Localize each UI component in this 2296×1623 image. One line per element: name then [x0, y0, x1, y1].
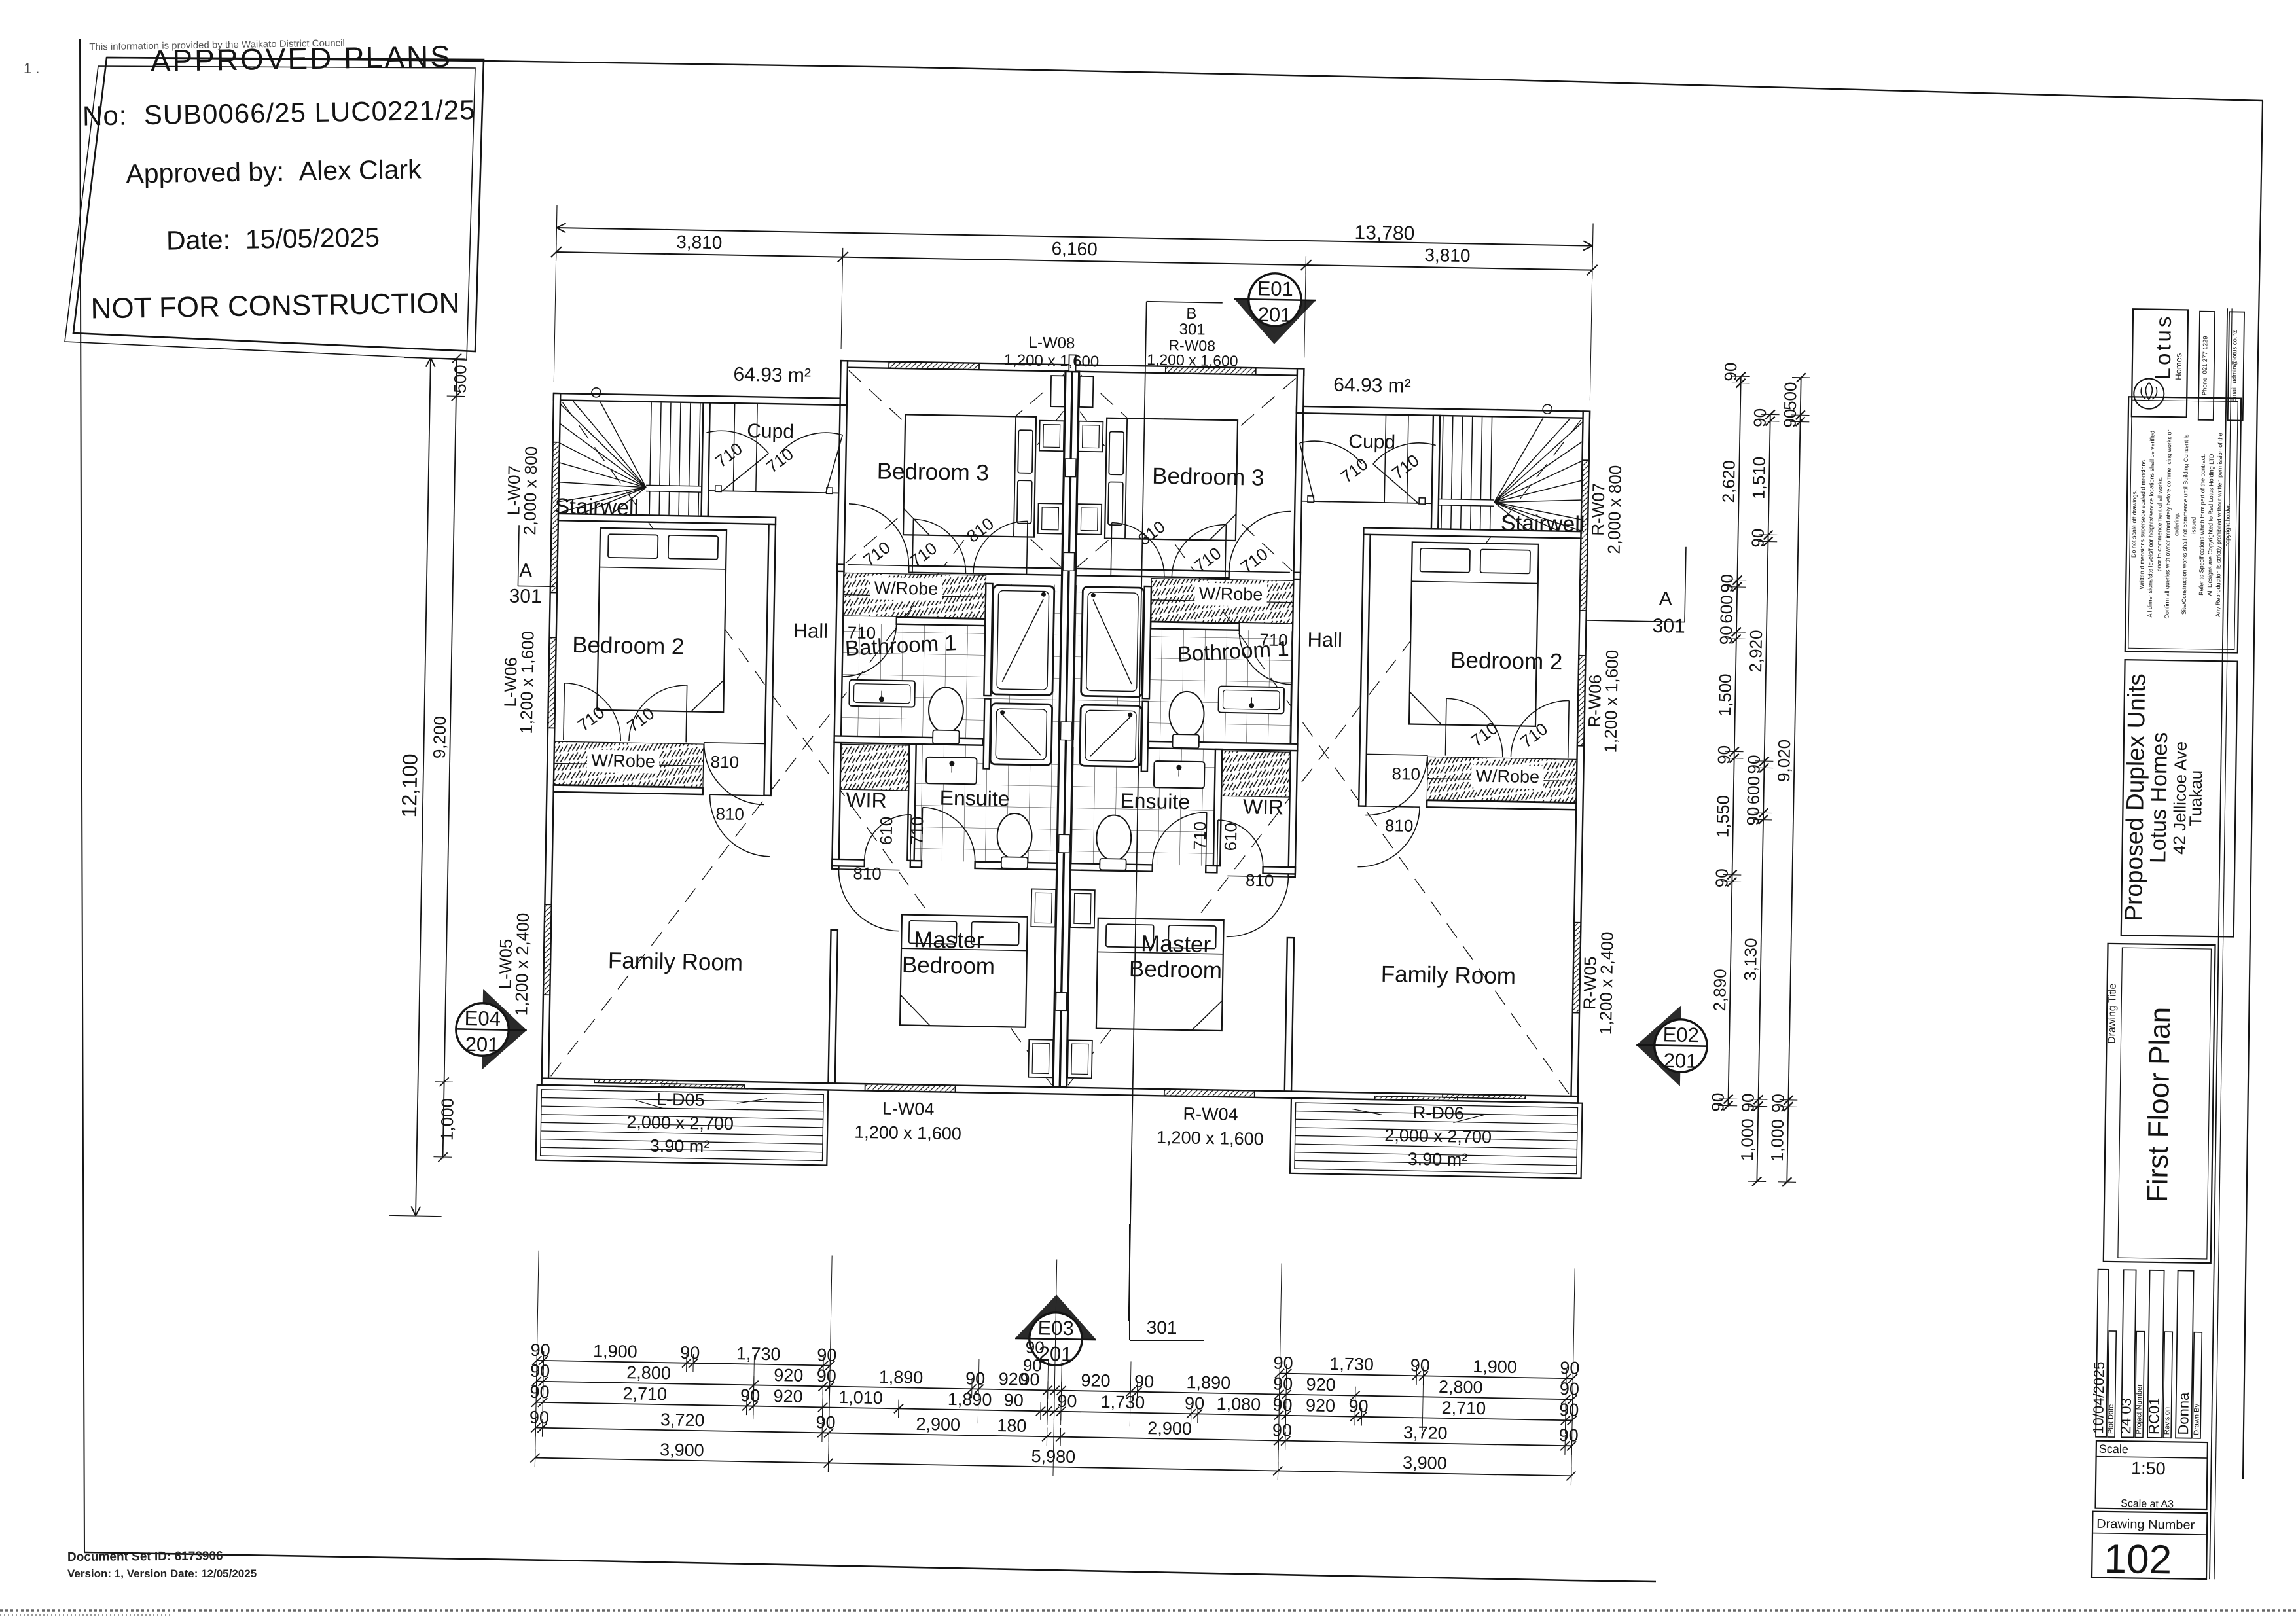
- svg-text:90: 90: [1712, 868, 1732, 887]
- svg-text:Master: Master: [914, 927, 984, 954]
- svg-text:1,000: 1,000: [1767, 1119, 1787, 1162]
- svg-text:1,010: 1,010: [838, 1387, 883, 1408]
- svg-text:24 03: 24 03: [2117, 1398, 2134, 1434]
- svg-text:1,200 x 2,400: 1,200 x 2,400: [511, 912, 533, 1016]
- svg-text:90: 90: [740, 1385, 761, 1406]
- svg-text:1,890: 1,890: [948, 1389, 992, 1410]
- svg-text:Bedroom: Bedroom: [1129, 956, 1223, 983]
- svg-text:1,200 x 2,400: 1,200 x 2,400: [1596, 931, 1617, 1035]
- svg-text:W/Robe: W/Robe: [1475, 766, 1539, 787]
- svg-text:Stairwell: Stairwell: [1501, 510, 1585, 537]
- svg-text:Lotus: Lotus: [2151, 313, 2176, 380]
- svg-text:90: 90: [1558, 1425, 1579, 1446]
- svg-text:Homes: Homes: [2174, 353, 2184, 380]
- svg-text:L-W08: L-W08: [1028, 334, 1075, 352]
- svg-text:90: 90: [1768, 1094, 1788, 1113]
- svg-text:3,900: 3,900: [1403, 1453, 1447, 1473]
- svg-text:710: 710: [907, 816, 927, 845]
- svg-text:Ensuite: Ensuite: [1120, 789, 1190, 813]
- svg-text:90: 90: [1272, 1395, 1293, 1416]
- svg-text:Tuakau: Tuakau: [2185, 770, 2206, 827]
- svg-text:2,620: 2,620: [1719, 460, 1739, 503]
- svg-text:3,720: 3,720: [660, 1410, 705, 1430]
- svg-text:RC01: RC01: [2145, 1397, 2162, 1435]
- svg-text:3,810: 3,810: [676, 232, 723, 253]
- svg-text:600: 600: [1744, 776, 1764, 805]
- svg-text:Do not scale off drawings.: Do not scale off drawings.: [2130, 490, 2138, 558]
- svg-text:Family Room: Family Room: [1380, 961, 1516, 990]
- svg-text:12,100: 12,100: [397, 753, 422, 817]
- svg-text:90: 90: [965, 1368, 986, 1389]
- svg-text:920: 920: [1081, 1370, 1111, 1391]
- svg-text:Hall: Hall: [1307, 628, 1342, 652]
- svg-text:Cupd: Cupd: [1348, 431, 1395, 453]
- svg-text:9,200: 9,200: [429, 716, 450, 759]
- svg-text:NOT FOR CONSTRUCTION: NOT FOR CONSTRUCTION: [90, 287, 460, 325]
- svg-text:Scale at A3: Scale at A3: [2121, 1498, 2174, 1510]
- svg-text:1,500: 1,500: [1715, 673, 1735, 717]
- svg-text:E01: E01: [1257, 277, 1293, 300]
- svg-text:90: 90: [1410, 1355, 1430, 1376]
- svg-text:920: 920: [773, 1386, 803, 1406]
- svg-text:201: 201: [465, 1033, 499, 1056]
- svg-text:2,800: 2,800: [1439, 1377, 1483, 1397]
- svg-text:3,130: 3,130: [1740, 938, 1761, 981]
- svg-text:Master: Master: [1141, 931, 1211, 957]
- svg-text:Plot Date: Plot Date: [2107, 1404, 2115, 1434]
- svg-text:W/Robe: W/Robe: [874, 578, 938, 599]
- svg-text:500: 500: [1780, 382, 1801, 410]
- svg-text:Bedroom: Bedroom: [902, 952, 996, 979]
- svg-text:ordering.: ordering.: [2173, 512, 2179, 536]
- svg-text:301: 301: [1179, 321, 1206, 339]
- svg-text:10/04/2025: 10/04/2025: [2090, 1361, 2108, 1433]
- svg-text:301: 301: [1147, 1317, 1177, 1338]
- svg-text:90: 90: [1716, 626, 1736, 645]
- svg-text:6,160: 6,160: [1051, 238, 1098, 259]
- svg-text:L-D05: L-D05: [656, 1090, 705, 1110]
- svg-text:90: 90: [1023, 1355, 1042, 1376]
- svg-text:Lotus Homes: Lotus Homes: [2145, 732, 2172, 863]
- svg-text:920: 920: [1306, 1395, 1336, 1416]
- svg-text:90: 90: [1750, 408, 1770, 427]
- svg-text:810: 810: [715, 804, 744, 824]
- svg-text:E02: E02: [1662, 1023, 1699, 1046]
- svg-text:3.90 m²: 3.90 m²: [650, 1136, 710, 1157]
- svg-text:810: 810: [1385, 815, 1414, 836]
- svg-text:920: 920: [774, 1365, 804, 1385]
- svg-text:1,730: 1,730: [1329, 1354, 1374, 1374]
- svg-text:R-D06: R-D06: [1413, 1103, 1465, 1123]
- svg-text:201: 201: [1663, 1049, 1697, 1073]
- svg-text:1 .: 1 .: [24, 60, 39, 77]
- svg-text:Drawing Number: Drawing Number: [2096, 1517, 2195, 1533]
- svg-text:Donna: Donna: [2175, 1392, 2192, 1435]
- svg-text:prior to commencement of all w: prior to commencement of all works.: [2156, 477, 2164, 572]
- svg-text:610: 610: [876, 817, 897, 846]
- svg-text:1,890: 1,890: [1186, 1372, 1230, 1393]
- svg-text:3,810: 3,810: [1424, 245, 1471, 266]
- svg-text:500: 500: [450, 365, 471, 393]
- svg-text:R-W04: R-W04: [1183, 1104, 1238, 1124]
- svg-text:90: 90: [530, 1361, 550, 1382]
- svg-text:1,550: 1,550: [1713, 795, 1733, 838]
- svg-text:3,900: 3,900: [660, 1440, 704, 1460]
- svg-text:13,780: 13,780: [1354, 222, 1414, 245]
- svg-text:90: 90: [1560, 1379, 1580, 1399]
- svg-text:E04: E04: [464, 1007, 501, 1030]
- svg-text:1,080: 1,080: [1216, 1394, 1261, 1414]
- svg-text:90: 90: [1708, 1092, 1728, 1111]
- svg-text:90: 90: [1560, 1358, 1580, 1378]
- svg-text:1,200 x 1,600: 1,200 x 1,600: [1004, 351, 1100, 371]
- svg-text:2,710: 2,710: [622, 1383, 667, 1404]
- svg-text:90: 90: [529, 1408, 550, 1428]
- svg-text:1,200 x 1,600: 1,200 x 1,600: [1157, 1128, 1264, 1149]
- svg-text:90: 90: [1721, 362, 1741, 381]
- svg-text:2,900: 2,900: [1147, 1418, 1192, 1438]
- svg-text:102: 102: [2104, 1537, 2172, 1582]
- svg-text:180: 180: [997, 1416, 1027, 1436]
- svg-text:Scale: Scale: [2099, 1442, 2128, 1456]
- svg-text:1,200 x 1,600: 1,200 x 1,600: [1147, 351, 1238, 369]
- svg-text:90: 90: [529, 1382, 550, 1402]
- svg-text:Family Room: Family Room: [608, 948, 744, 976]
- svg-text:301: 301: [509, 585, 542, 607]
- svg-text:90: 90: [1273, 1374, 1293, 1394]
- svg-text:A: A: [519, 560, 533, 582]
- svg-text:90: 90: [1185, 1393, 1205, 1414]
- svg-text:90: 90: [1743, 806, 1763, 825]
- svg-text:Bedroom 3: Bedroom 3: [876, 458, 989, 486]
- svg-text:2,000 x 800: 2,000 x 800: [1604, 465, 1625, 554]
- svg-text:1,200 x 1,600: 1,200 x 1,600: [516, 631, 538, 734]
- svg-text:2,890: 2,890: [1710, 969, 1730, 1012]
- svg-text:90: 90: [1272, 1420, 1293, 1440]
- svg-text:issued.: issued.: [2190, 515, 2197, 534]
- svg-text:2,000 x 2,700: 2,000 x 2,700: [1384, 1126, 1492, 1147]
- svg-text:First Floor Plan: First Floor Plan: [2142, 1007, 2176, 1202]
- svg-text:1,510: 1,510: [1749, 456, 1769, 499]
- svg-text:Proposed Duplex Units: Proposed Duplex Units: [2120, 673, 2150, 921]
- svg-text:2,800: 2,800: [626, 1363, 671, 1383]
- svg-text:64.93 m²: 64.93 m²: [1333, 374, 1411, 397]
- svg-text:Version: 1, Version Date: 12/0: Version: 1, Version Date: 12/05/2025: [67, 1567, 257, 1580]
- svg-text:Drawn By: Drawn By: [2193, 1404, 2201, 1435]
- svg-text:WIR: WIR: [846, 788, 887, 812]
- svg-text:90: 90: [1748, 528, 1768, 547]
- svg-text:90: 90: [680, 1343, 700, 1363]
- svg-text:Approved by: Alex Clark: Approved by: Alex Clark: [126, 154, 422, 188]
- svg-text:1,900: 1,900: [593, 1341, 637, 1361]
- svg-text:2,000 x 800: 2,000 x 800: [520, 446, 541, 535]
- svg-text:1,200 x 1,600: 1,200 x 1,600: [854, 1122, 961, 1144]
- svg-text:90: 90: [1273, 1353, 1293, 1374]
- svg-text:L-W04: L-W04: [882, 1099, 935, 1119]
- svg-text:Bedroom 2: Bedroom 2: [572, 632, 685, 660]
- svg-text:3,720: 3,720: [1403, 1423, 1448, 1443]
- svg-text:Document Set ID: 6173906: Document Set ID: 6173906: [67, 1549, 223, 1564]
- svg-text:810: 810: [853, 863, 882, 883]
- svg-text:90: 90: [1134, 1372, 1155, 1392]
- svg-text:90: 90: [530, 1340, 550, 1361]
- svg-text:710: 710: [848, 622, 876, 643]
- svg-text:710: 710: [1259, 630, 1288, 650]
- svg-text:1:50: 1:50: [2131, 1458, 2166, 1478]
- svg-text:Hall: Hall: [793, 619, 828, 643]
- svg-text:Bedroom 3: Bedroom 3: [1152, 463, 1265, 491]
- svg-text:WIR: WIR: [1243, 794, 1284, 819]
- svg-text:90: 90: [1026, 1337, 1045, 1357]
- svg-text:Phone 021 277 1229: Phone 021 277 1229: [2201, 336, 2209, 395]
- svg-text:90: 90: [1004, 1390, 1024, 1410]
- svg-text:90: 90: [1559, 1400, 1579, 1420]
- svg-text:Project Number: Project Number: [2135, 1384, 2144, 1435]
- svg-text:90: 90: [817, 1345, 837, 1365]
- svg-text:No: SUB0066/25 LUC0221/25: No: SUB0066/25 LUC0221/25: [82, 94, 476, 131]
- svg-text:2,000 x 2,700: 2,000 x 2,700: [626, 1112, 734, 1133]
- svg-text:600: 600: [1716, 595, 1736, 624]
- svg-text:Revision: Revision: [2163, 1407, 2172, 1435]
- svg-text:W/Robe: W/Robe: [591, 751, 655, 772]
- svg-text:1,200 x 1,600: 1,200 x 1,600: [1600, 650, 1622, 753]
- svg-text:64.93 m²: 64.93 m²: [733, 364, 811, 387]
- svg-text:810: 810: [710, 752, 739, 772]
- svg-text:Ensuite: Ensuite: [939, 786, 1009, 811]
- svg-text:90: 90: [1717, 574, 1737, 593]
- svg-text:1,900: 1,900: [1473, 1357, 1517, 1377]
- svg-text:90: 90: [816, 1366, 836, 1386]
- svg-text:90: 90: [1780, 408, 1800, 427]
- svg-text:90: 90: [816, 1412, 836, 1433]
- svg-text:Cupd: Cupd: [747, 420, 794, 442]
- svg-text:A: A: [1659, 588, 1672, 610]
- svg-text:90: 90: [1714, 745, 1734, 764]
- svg-text:2,900: 2,900: [916, 1414, 960, 1435]
- svg-text:90: 90: [1057, 1391, 1077, 1412]
- svg-text:9,020: 9,020: [1774, 740, 1794, 783]
- svg-text:90: 90: [1738, 1093, 1758, 1112]
- svg-text:1,890: 1,890: [878, 1367, 923, 1387]
- svg-text:201: 201: [1257, 303, 1291, 327]
- svg-text:810: 810: [1246, 870, 1274, 891]
- svg-text:Stairwell: Stairwell: [554, 494, 639, 520]
- svg-text:610: 610: [1221, 823, 1241, 851]
- svg-text:W/Robe: W/Robe: [1199, 584, 1263, 605]
- svg-text:3.90 m²: 3.90 m²: [1408, 1149, 1468, 1170]
- svg-text:2,920: 2,920: [1746, 630, 1766, 673]
- svg-text:1,000: 1,000: [437, 1098, 457, 1141]
- svg-text:810: 810: [1391, 764, 1420, 784]
- svg-text:1,730: 1,730: [736, 1344, 781, 1364]
- svg-text:710: 710: [1190, 821, 1210, 850]
- svg-text:301: 301: [1652, 615, 1685, 637]
- svg-text:90: 90: [1348, 1397, 1369, 1417]
- svg-text:90: 90: [1744, 755, 1764, 774]
- svg-text:920: 920: [1306, 1374, 1336, 1395]
- svg-text:1,000: 1,000: [1737, 1118, 1757, 1162]
- svg-text:Drawing Title: Drawing Title: [2106, 983, 2118, 1044]
- svg-text:2,710: 2,710: [1441, 1398, 1486, 1418]
- svg-text:Date: 15/05/2025: Date: 15/05/2025: [166, 222, 380, 255]
- svg-text:Bedroom 2: Bedroom 2: [1450, 647, 1563, 675]
- svg-text:1,730: 1,730: [1100, 1392, 1145, 1412]
